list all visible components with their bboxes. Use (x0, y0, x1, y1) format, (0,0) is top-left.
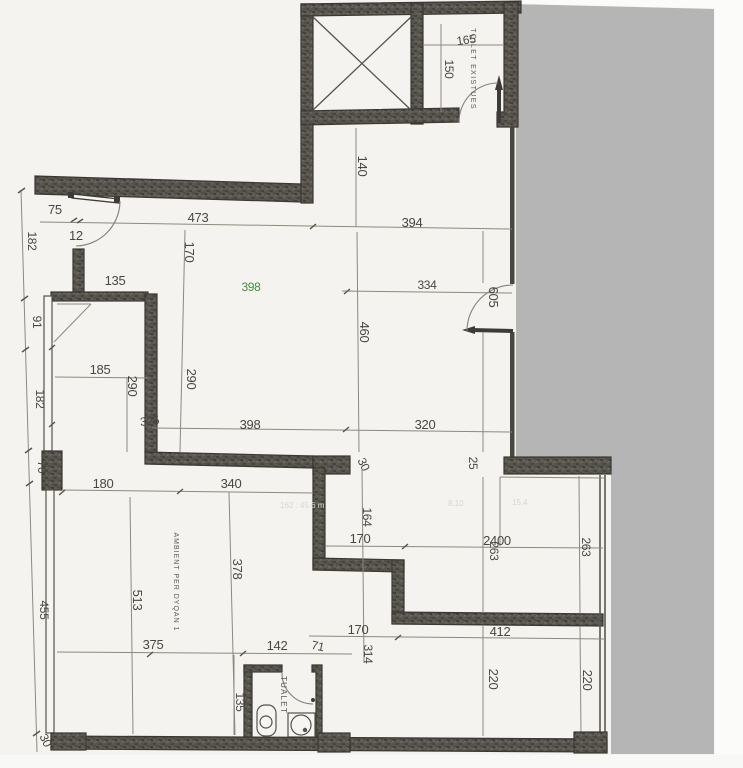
svg-text:12: 12 (69, 228, 83, 243)
svg-text:135: 135 (233, 692, 247, 712)
svg-text:398: 398 (240, 417, 261, 432)
svg-text:340: 340 (221, 476, 242, 491)
svg-text:185: 185 (90, 362, 111, 377)
svg-text:70: 70 (35, 461, 49, 474)
svg-text:460: 460 (357, 322, 372, 343)
svg-text:25: 25 (466, 457, 480, 470)
svg-text:378: 378 (230, 559, 245, 580)
svg-text:162 : 45.6 m: 162 : 45.6 m (280, 501, 325, 510)
svg-text:220: 220 (486, 669, 501, 690)
svg-text:TUALET: TUALET (279, 676, 288, 714)
svg-text:394: 394 (402, 215, 423, 230)
svg-text:91: 91 (30, 316, 44, 329)
svg-text:290: 290 (184, 369, 199, 390)
svg-text:142: 142 (267, 638, 288, 653)
svg-text:334: 334 (417, 278, 437, 292)
svg-text:455: 455 (37, 600, 51, 620)
svg-text:182: 182 (25, 231, 39, 251)
svg-text:325: 325 (139, 413, 160, 429)
svg-text:15.4: 15.4 (512, 498, 528, 507)
svg-text:398: 398 (241, 280, 261, 294)
svg-text:180: 180 (93, 476, 114, 491)
svg-text:320: 320 (415, 417, 436, 432)
svg-text:605: 605 (486, 287, 501, 308)
svg-text:75: 75 (48, 202, 62, 217)
svg-text:TOILET EXISTUES: TOILET EXISTUES (469, 28, 476, 110)
svg-text:140: 140 (355, 156, 370, 177)
svg-text:375: 375 (143, 637, 164, 652)
svg-text:263: 263 (579, 537, 593, 557)
svg-text:8.10: 8.10 (448, 499, 464, 508)
svg-text:182: 182 (33, 389, 47, 409)
svg-text:150: 150 (442, 59, 456, 79)
svg-text:AMBIENT PER DYQAN 1: AMBIENT PER DYQAN 1 (172, 532, 179, 631)
svg-text:170: 170 (348, 622, 369, 637)
svg-text:263: 263 (487, 541, 501, 561)
svg-text:135: 135 (105, 273, 126, 288)
svg-text:220: 220 (580, 670, 595, 691)
svg-text:473: 473 (188, 210, 209, 225)
svg-text:513: 513 (130, 590, 145, 611)
svg-text:170: 170 (350, 531, 371, 546)
svg-text:412: 412 (490, 624, 511, 639)
svg-text:314: 314 (361, 644, 375, 664)
